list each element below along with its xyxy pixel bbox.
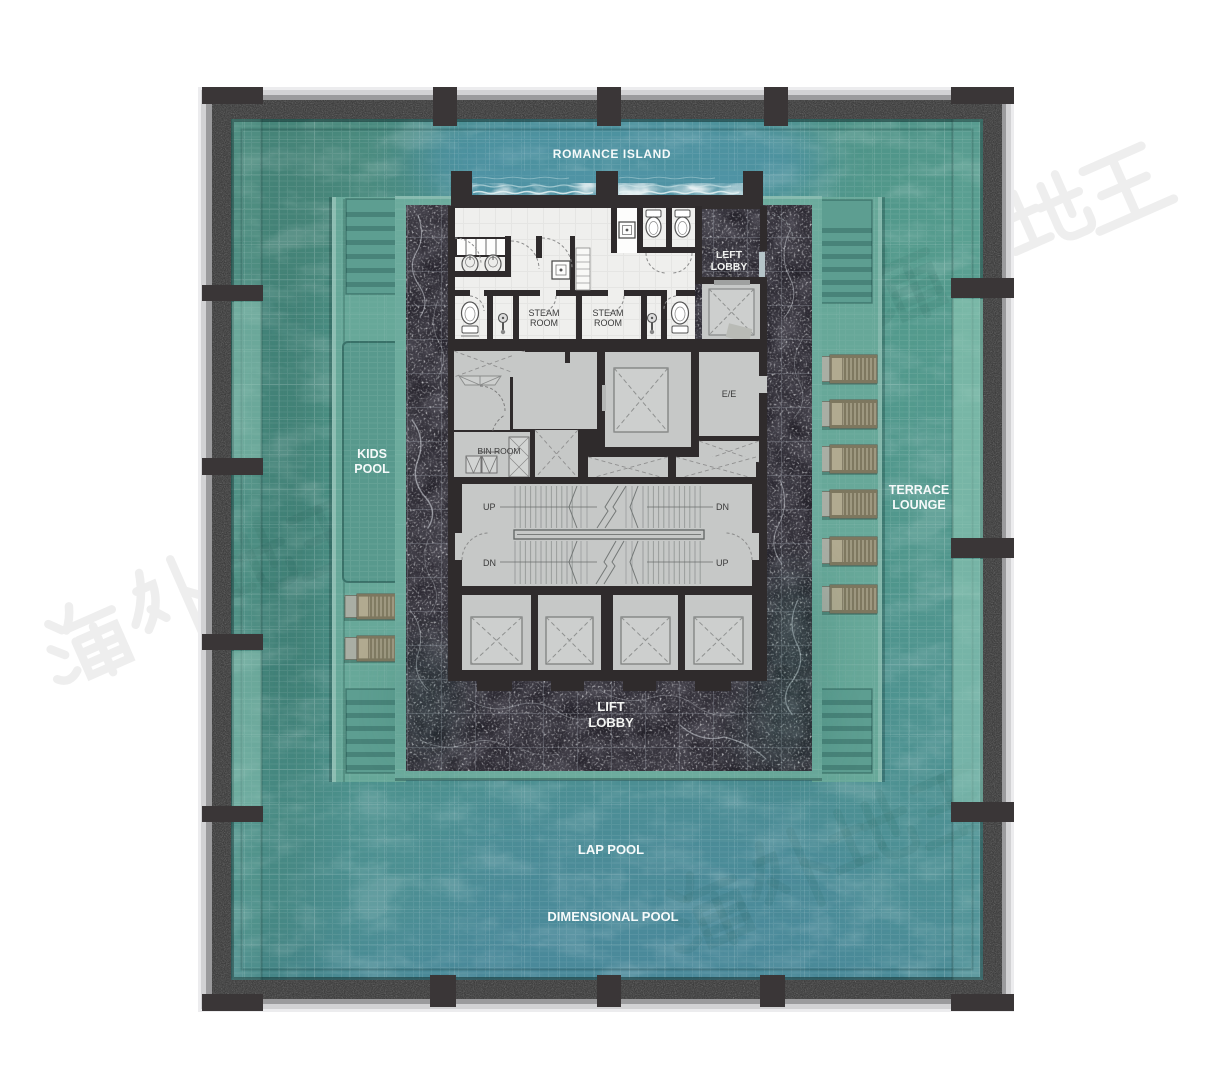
svg-text:DIMENSIONAL POOL: DIMENSIONAL POOL	[547, 909, 678, 924]
svg-text:POOL: POOL	[354, 462, 390, 476]
svg-text:UP: UP	[716, 558, 729, 568]
svg-text:LIFT: LIFT	[597, 699, 624, 714]
svg-text:BIN ROOM: BIN ROOM	[478, 446, 521, 456]
svg-text:KIDS: KIDS	[357, 447, 387, 461]
svg-text:LOBBY: LOBBY	[711, 261, 748, 273]
svg-text:LOUNGE: LOUNGE	[892, 498, 945, 512]
svg-text:LOBBY: LOBBY	[588, 715, 634, 730]
svg-text:TERRACE: TERRACE	[889, 483, 949, 497]
svg-text:LEFT: LEFT	[716, 249, 743, 261]
svg-text:STEAM: STEAM	[528, 308, 559, 318]
svg-text:ROOM: ROOM	[594, 318, 622, 328]
svg-text:ROOM: ROOM	[530, 318, 558, 328]
svg-text:DN: DN	[483, 558, 496, 568]
svg-text:E/E: E/E	[722, 389, 737, 399]
svg-text:LAP POOL: LAP POOL	[578, 842, 644, 857]
svg-text:DN: DN	[716, 502, 729, 512]
svg-text:UP: UP	[483, 502, 496, 512]
svg-text:STEAM: STEAM	[592, 308, 623, 318]
svg-text:ROMANCE ISLAND: ROMANCE ISLAND	[553, 147, 671, 161]
